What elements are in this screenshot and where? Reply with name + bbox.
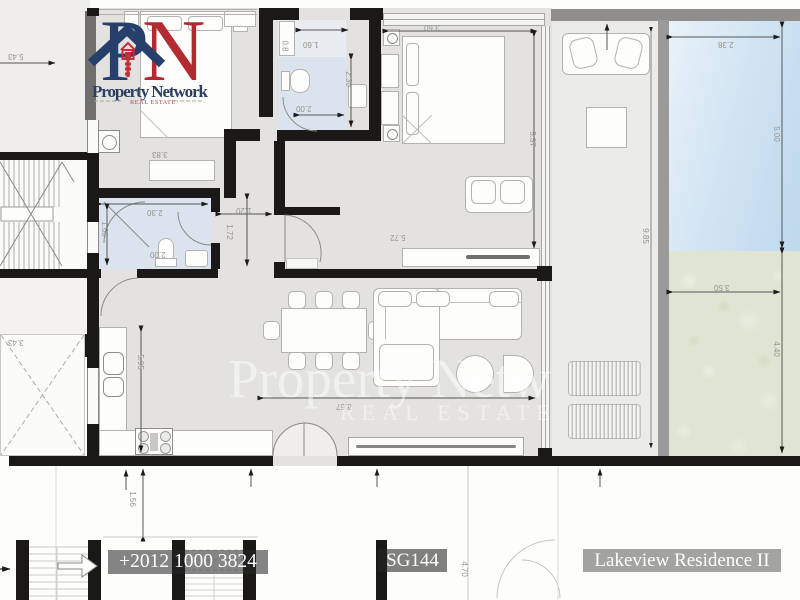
svg-text:REAL ESTATE: REAL ESTATE — [130, 99, 176, 106]
